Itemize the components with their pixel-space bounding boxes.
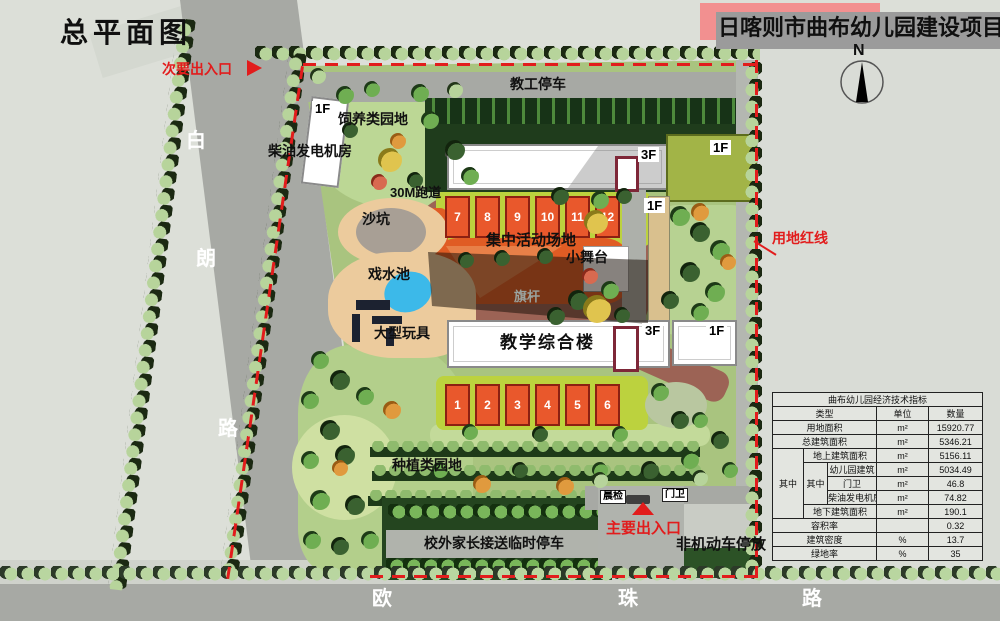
red-line-north xyxy=(303,63,757,66)
tree-icon xyxy=(356,387,374,405)
row-label: 地上建筑面积 xyxy=(804,449,877,463)
floor-tag-1f-east: 1F xyxy=(706,323,727,338)
tree-icon xyxy=(711,431,729,449)
tree-icon xyxy=(691,303,709,321)
sandpit-label: 沙坑 xyxy=(362,212,390,227)
red-line-south xyxy=(370,575,757,578)
tree-icon xyxy=(336,86,354,104)
row-label: 建筑密度 xyxy=(773,533,877,547)
col-header-type: 类型 xyxy=(773,407,877,421)
row-label: 用地面积 xyxy=(773,421,877,435)
classroom-block: 2 xyxy=(475,384,500,426)
row-label: 容积率 xyxy=(773,519,877,533)
east-boundary-trees xyxy=(744,62,762,578)
tree-icon xyxy=(612,426,628,442)
row-unit: m² xyxy=(877,435,929,449)
activity-ground-label: 集中活动场地 xyxy=(486,233,576,250)
tree-icon xyxy=(537,248,553,264)
tree-icon xyxy=(310,68,326,84)
west-road-name-1: 白 xyxy=(186,130,206,152)
tree-icon xyxy=(692,412,708,428)
row-label: 总建筑面积 xyxy=(773,435,877,449)
teaching-building-door xyxy=(613,326,639,372)
row-label: 柴油发电机房 xyxy=(828,491,877,505)
tree-icon xyxy=(616,188,632,204)
wading-pool-label: 戏水池 xyxy=(368,267,410,282)
tree-icon xyxy=(641,461,659,479)
page-title: 总平面图 xyxy=(60,18,192,49)
tree-icon xyxy=(371,174,387,190)
parking-stalls xyxy=(432,98,744,124)
tree-icon xyxy=(320,420,340,440)
tree-icon xyxy=(364,81,380,97)
south-road-name-1: 欧 xyxy=(372,588,392,610)
tree-icon xyxy=(614,307,630,323)
row-unit xyxy=(877,519,929,533)
tree-icon xyxy=(705,282,725,302)
secondary-entrance-arrow-icon xyxy=(247,60,262,76)
tree-icon xyxy=(556,477,574,495)
row-qty: 5034.49 xyxy=(929,463,983,477)
floor-tag-1f-tan: 1F xyxy=(644,198,665,213)
compass-north-label: N xyxy=(853,42,865,60)
tree-icon xyxy=(582,268,598,284)
planting-garden-label: 种植类园地 xyxy=(392,458,462,473)
south-road-name-3: 路 xyxy=(802,588,822,610)
main-entrance-label: 主要出入口 xyxy=(606,521,681,538)
track-label: 30M跑道 xyxy=(390,186,441,200)
tree-icon xyxy=(301,391,319,409)
large-toys-label: 大型玩具 xyxy=(374,326,430,341)
row-unit: % xyxy=(877,533,929,547)
tree-icon xyxy=(670,206,690,226)
table-title: 曲布幼儿园经济技术指标 xyxy=(773,393,983,407)
classroom-blocks-lower: 1 2 3 4 5 6 xyxy=(445,384,620,426)
stage-label: 小舞台 xyxy=(566,250,608,265)
row-unit: m² xyxy=(877,449,929,463)
classroom-block: 1 xyxy=(445,384,470,426)
tree-icon xyxy=(411,84,429,102)
row-qty: 13.7 xyxy=(929,533,983,547)
teaching-building-label: 教学综合楼 xyxy=(500,334,595,353)
project-banner: 日喀则市曲布幼儿园建设项目 xyxy=(718,16,1000,40)
tree-icon xyxy=(583,295,611,323)
tree-icon xyxy=(690,222,710,242)
tree-icon xyxy=(361,531,379,549)
row-qty: 46.8 xyxy=(929,477,983,491)
tree-icon xyxy=(421,111,439,129)
row-unit: m² xyxy=(877,505,929,519)
west-road-name-3: 路 xyxy=(218,418,238,440)
tree-icon xyxy=(462,424,478,440)
tree-icon xyxy=(692,470,708,486)
site-plan-page: { "page_title": "总平面图", "banner": { "tex… xyxy=(0,0,1000,621)
tree-icon xyxy=(301,451,319,469)
tree-icon xyxy=(720,254,736,270)
tree-icon xyxy=(651,383,669,401)
row-label: 门卫 xyxy=(828,477,877,491)
tree-icon xyxy=(681,451,699,469)
row-qty: 35 xyxy=(929,547,983,561)
non-motor-parking-label: 非机动车停放 xyxy=(676,537,766,554)
staff-parking-label: 教工停车 xyxy=(510,77,566,92)
tree-icon xyxy=(311,351,329,369)
tree-icon xyxy=(592,472,608,488)
tree-icon xyxy=(332,460,348,476)
row-unit: m² xyxy=(877,491,929,505)
tree-icon xyxy=(671,411,689,429)
col-header-unit: 单位 xyxy=(877,407,929,421)
tan-building xyxy=(648,196,670,330)
compass-icon xyxy=(838,58,886,106)
west-road-trees-left xyxy=(108,18,196,591)
among-cell: 其中 xyxy=(773,449,804,519)
tree-icon xyxy=(383,401,401,419)
classroom-block: 6 xyxy=(595,384,620,426)
row-qty: 74.82 xyxy=(929,491,983,505)
row-qty: 5156.11 xyxy=(929,449,983,463)
tree-icon xyxy=(331,537,349,555)
floor-tag-1f-generator: 1F xyxy=(312,101,333,116)
parent-parking-trees-top xyxy=(388,504,610,522)
tree-icon xyxy=(310,490,330,510)
col-header-qty: 数量 xyxy=(929,407,983,421)
tree-icon xyxy=(473,475,491,493)
floor-tag-3f-teaching: 3F xyxy=(642,323,663,338)
secondary-entrance-label: 次要出入口 xyxy=(162,62,232,77)
tree-icon xyxy=(458,252,474,268)
row-unit: % xyxy=(877,547,929,561)
tree-icon xyxy=(551,187,569,205)
among-cell: 其中 xyxy=(804,463,828,505)
red-line-east xyxy=(755,60,758,578)
guard-room-box: 门卫 xyxy=(662,488,688,502)
tree-icon xyxy=(303,531,321,549)
tree-icon xyxy=(445,140,465,160)
tree-icon xyxy=(494,250,510,266)
west-road-name-2: 朗 xyxy=(196,248,216,270)
south-road-name-2: 珠 xyxy=(618,588,638,610)
indicator-table: 曲布幼儿园经济技术指标 类型 单位 数量 用地面积 m² 15920.77 总建… xyxy=(772,392,983,561)
hedge-row-1 xyxy=(370,441,700,457)
east-building-1f xyxy=(672,320,737,366)
row-label: 绿地率 xyxy=(773,547,877,561)
red-line-label: 用地红线 xyxy=(772,231,828,246)
tree-icon xyxy=(722,462,738,478)
tree-icon xyxy=(547,307,565,325)
morning-check-box: 晨检 xyxy=(600,490,626,504)
row-qty: 190.1 xyxy=(929,505,983,519)
tree-icon xyxy=(378,148,402,172)
row-unit: m² xyxy=(877,421,929,435)
row-unit: m² xyxy=(877,477,929,491)
main-entrance-arrow-icon xyxy=(632,502,654,515)
breeding-garden-label: 饲养类园地 xyxy=(338,112,408,127)
tree-icon xyxy=(532,426,548,442)
tree-icon xyxy=(661,291,679,309)
parent-parking-label: 校外家长接送临时停车 xyxy=(424,536,564,551)
classroom-block: 4 xyxy=(535,384,560,426)
tree-icon xyxy=(330,370,350,390)
classroom-block: 7 xyxy=(445,196,470,238)
row-label: 幼儿园建筑 xyxy=(828,463,877,477)
floor-tag-1f-olive: 1F xyxy=(710,140,731,155)
tree-icon xyxy=(584,210,608,234)
south-road xyxy=(0,584,1000,621)
classroom-block: 5 xyxy=(565,384,590,426)
row-unit: m² xyxy=(877,463,929,477)
tree-icon xyxy=(390,133,406,149)
flagpole-label: 旗杆 xyxy=(514,290,540,304)
row-qty: 15920.77 xyxy=(929,421,983,435)
tree-icon xyxy=(447,82,463,98)
generator-room-label: 柴油发电机房 xyxy=(268,144,352,159)
tree-icon xyxy=(680,262,700,282)
tree-icon xyxy=(461,167,479,185)
north-boundary-trees xyxy=(255,46,760,64)
floor-tag-3f-upper: 3F xyxy=(638,147,659,162)
upper-building-door xyxy=(615,156,639,192)
row-label: 地下建筑面积 xyxy=(804,505,877,519)
tree-icon xyxy=(512,462,528,478)
tree-icon xyxy=(691,203,709,221)
tree-icon xyxy=(591,191,609,209)
tree-icon xyxy=(345,495,365,515)
row-qty: 0.32 xyxy=(929,519,983,533)
classroom-block: 3 xyxy=(505,384,530,426)
row-qty: 5346.21 xyxy=(929,435,983,449)
